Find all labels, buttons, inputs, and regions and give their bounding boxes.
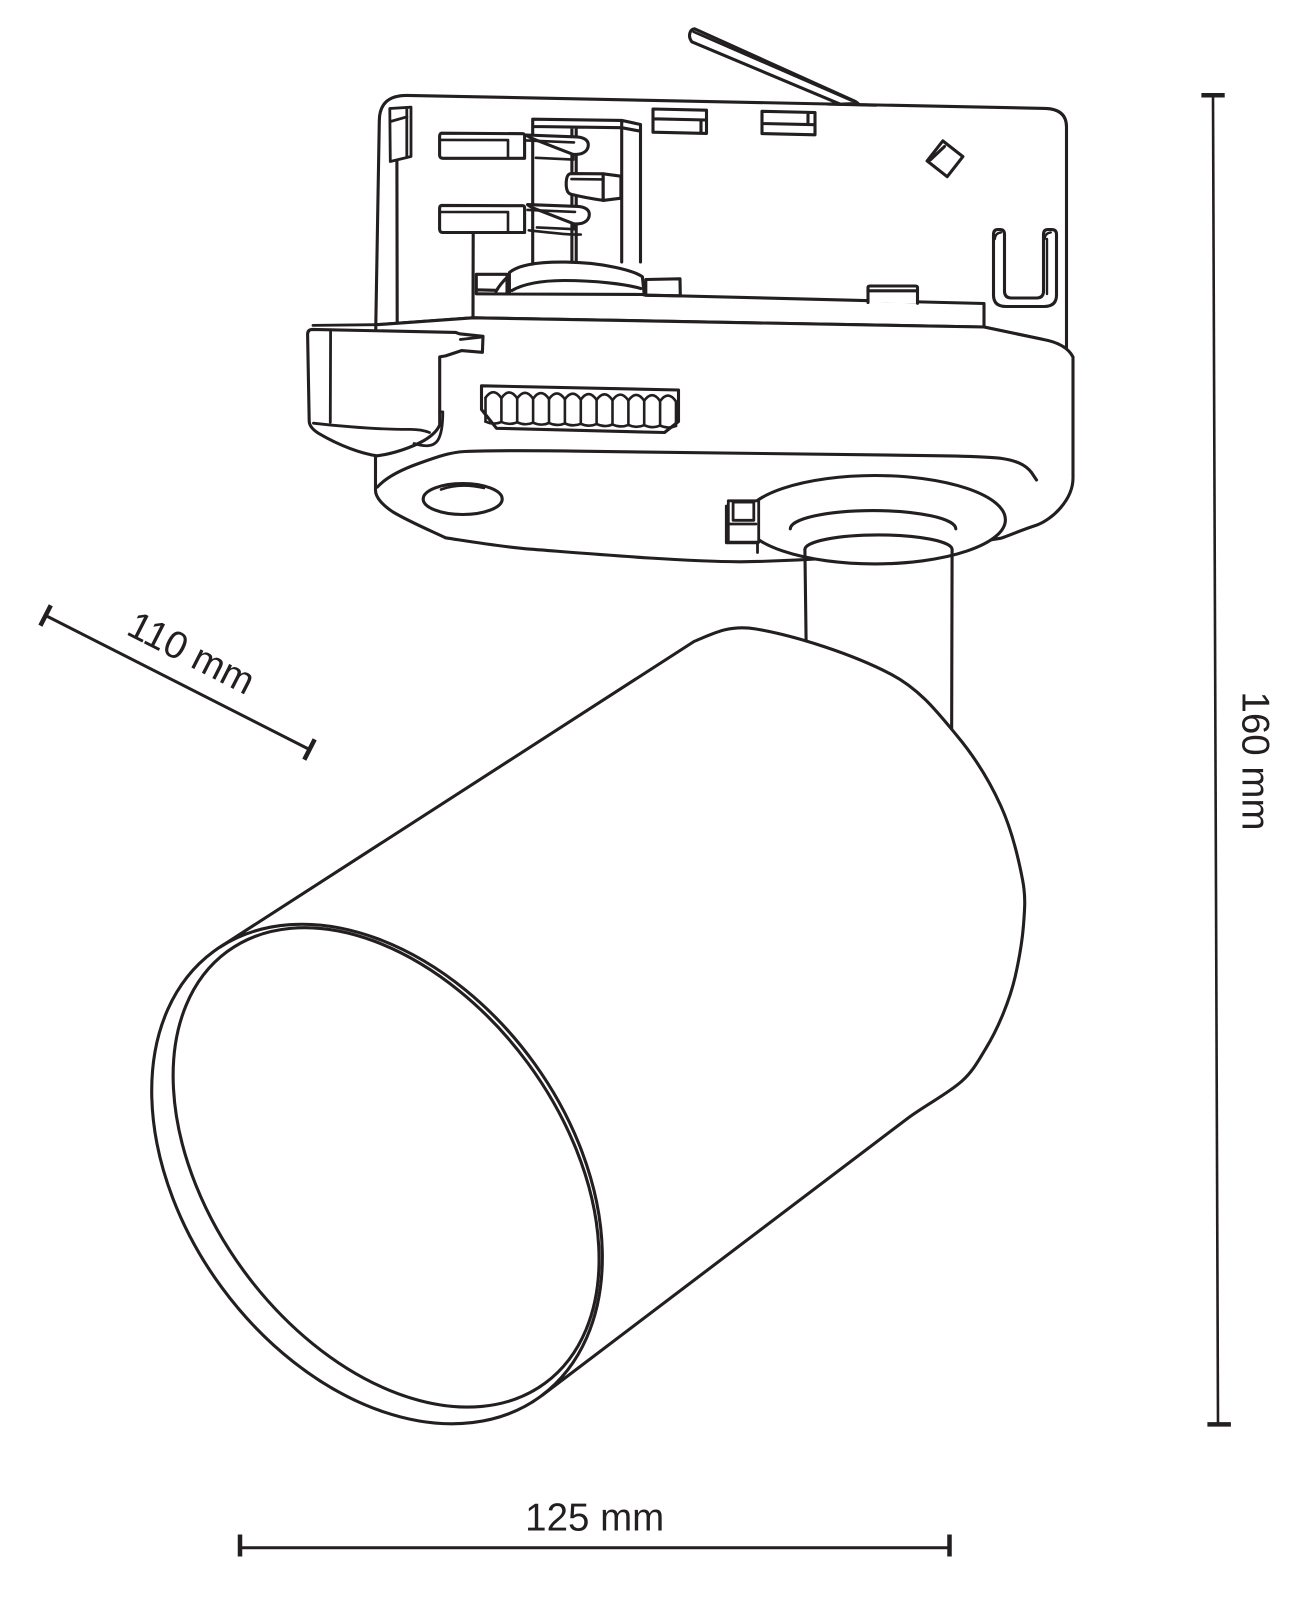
svg-text:160 mm: 160 mm <box>1234 691 1277 830</box>
svg-text:125 mm: 125 mm <box>525 1497 664 1540</box>
